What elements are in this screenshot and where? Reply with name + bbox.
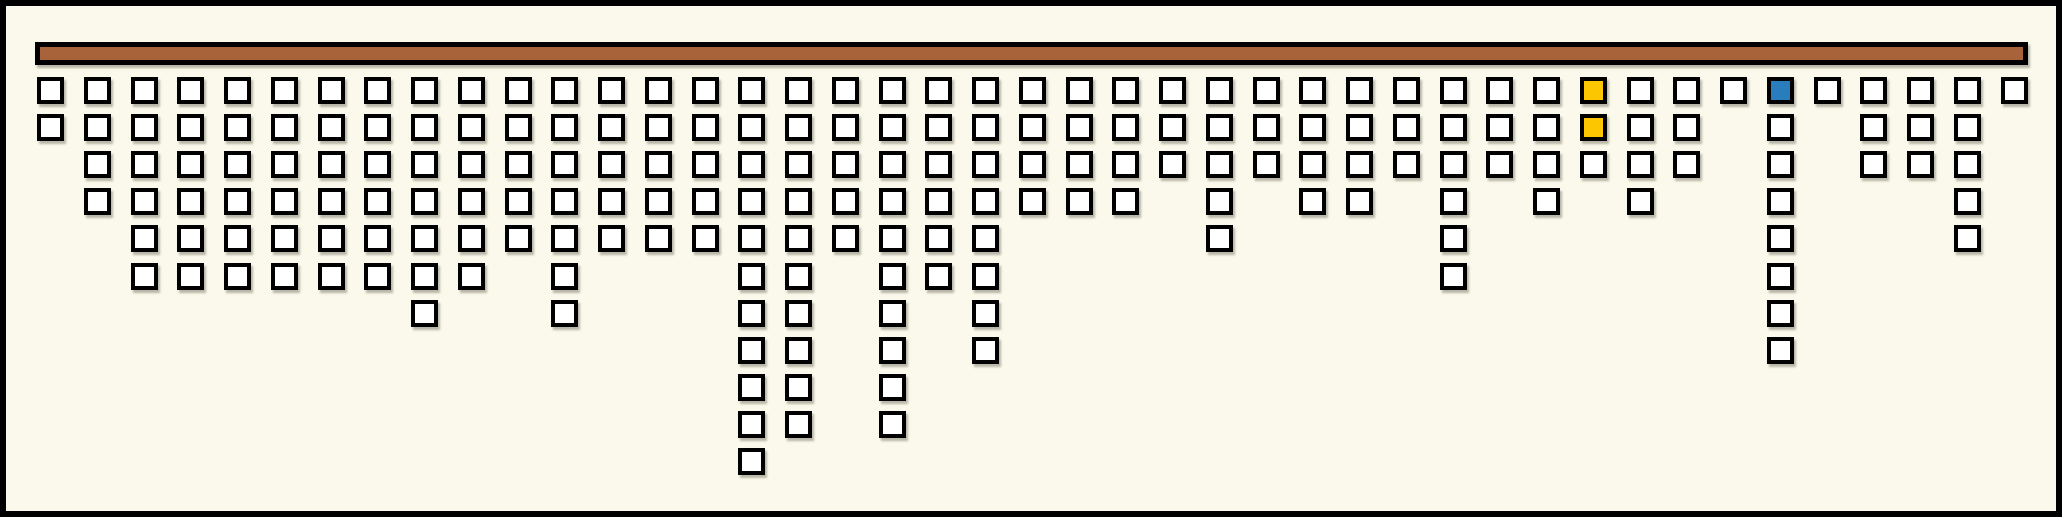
grid-cell — [505, 151, 532, 178]
grid-cell — [879, 188, 906, 215]
grid-cell — [1486, 114, 1513, 141]
grid-cell — [1440, 225, 1467, 252]
grid-cell — [738, 114, 765, 141]
grid-cell — [692, 77, 719, 104]
grid-cell — [972, 300, 999, 327]
grid-cell — [1206, 114, 1233, 141]
grid-cell — [785, 114, 812, 141]
grid-cell — [411, 300, 438, 327]
grid-cell — [598, 114, 625, 141]
grid-cell — [598, 225, 625, 252]
grid-cell — [1019, 151, 1046, 178]
grid-cell — [1767, 114, 1794, 141]
grid-cell — [738, 300, 765, 327]
grid-cell — [1767, 263, 1794, 290]
grid-cell — [1206, 151, 1233, 178]
grid-cell — [505, 77, 532, 104]
grid-cell — [1066, 77, 1093, 104]
grid-cell — [832, 225, 859, 252]
grid-cell — [1299, 114, 1326, 141]
grid-cell — [1907, 77, 1934, 104]
grid-cell — [1159, 114, 1186, 141]
grid-cell — [271, 225, 298, 252]
grid-cell — [1440, 114, 1467, 141]
grid-cell — [738, 151, 765, 178]
grid-cell — [551, 263, 578, 290]
grid-cell-yellow — [1580, 77, 1607, 104]
grid-cell — [364, 188, 391, 215]
grid-cell — [1206, 77, 1233, 104]
grid-cell — [177, 114, 204, 141]
grid-cell — [1112, 114, 1139, 141]
grid-cell — [551, 300, 578, 327]
grid-cell — [738, 225, 765, 252]
grid-cell — [131, 263, 158, 290]
grid-cell — [131, 114, 158, 141]
grid-cell — [224, 188, 251, 215]
grid-cell — [1580, 151, 1607, 178]
grid-cell — [879, 411, 906, 438]
grid-cell — [879, 114, 906, 141]
grid-cell — [1673, 151, 1700, 178]
grid-cell — [785, 374, 812, 401]
grid-cell — [879, 77, 906, 104]
grid-cell — [785, 188, 812, 215]
grid-cell — [131, 188, 158, 215]
grid-cell — [1206, 188, 1233, 215]
grid-cell — [1673, 77, 1700, 104]
grid-cell — [832, 151, 859, 178]
grid-cell — [1627, 188, 1654, 215]
grid-cell — [411, 77, 438, 104]
grid-cell — [1486, 151, 1513, 178]
grid-cell — [2001, 77, 2028, 104]
grid-cell — [177, 77, 204, 104]
grid-cell — [1954, 151, 1981, 178]
grid-cell — [1767, 225, 1794, 252]
grid-cell — [1253, 114, 1280, 141]
grid-cell — [925, 114, 952, 141]
grid-cell — [1533, 188, 1560, 215]
grid-cell — [1954, 77, 1981, 104]
grid-cell — [411, 188, 438, 215]
grid-cell — [1533, 151, 1560, 178]
grid-cell — [1627, 151, 1654, 178]
grid-cell — [131, 225, 158, 252]
grid-cell — [738, 374, 765, 401]
grid-cell — [1954, 114, 1981, 141]
grid-cell — [411, 114, 438, 141]
grid-cell — [879, 225, 906, 252]
grid-cell — [458, 225, 485, 252]
grid-cell — [1627, 114, 1654, 141]
grid-cell — [972, 337, 999, 364]
grid-cell — [131, 77, 158, 104]
grid-cell — [785, 151, 812, 178]
grid-cell — [411, 225, 438, 252]
grid-cell — [1486, 77, 1513, 104]
grid-cell — [505, 188, 532, 215]
grid-cell — [785, 300, 812, 327]
grid-cell — [84, 188, 111, 215]
grid-cell — [1066, 151, 1093, 178]
grid-cell — [318, 151, 345, 178]
grid-cell — [364, 77, 391, 104]
grid-cell — [364, 114, 391, 141]
grid-cell — [271, 188, 298, 215]
grid-cell — [879, 374, 906, 401]
grid-cell — [551, 188, 578, 215]
grid-cell — [364, 263, 391, 290]
grid-cell — [1299, 151, 1326, 178]
grid-cell — [318, 114, 345, 141]
grid-cell — [177, 151, 204, 178]
grid-cell — [1767, 300, 1794, 327]
grid-cell — [1066, 114, 1093, 141]
grid-cell — [551, 114, 578, 141]
grid-cell — [1440, 151, 1467, 178]
grid-cell — [131, 151, 158, 178]
grid-cell — [645, 114, 672, 141]
grid-cell — [1346, 114, 1373, 141]
grid-cell — [37, 114, 64, 141]
grid-cell — [1907, 114, 1934, 141]
grid-cell — [224, 151, 251, 178]
grid-cell — [738, 188, 765, 215]
grid-cell — [1814, 77, 1841, 104]
grid-cell — [1907, 151, 1934, 178]
grid-cell — [411, 263, 438, 290]
grid-cell — [318, 188, 345, 215]
grid-cell — [224, 77, 251, 104]
grid-cell — [1066, 188, 1093, 215]
grid-cell — [598, 151, 625, 178]
grid-cell — [879, 263, 906, 290]
grid-cell — [1767, 337, 1794, 364]
grid-cell — [1767, 188, 1794, 215]
grid-cell — [785, 337, 812, 364]
grid-cell — [738, 411, 765, 438]
grid-cell — [1253, 151, 1280, 178]
grid-cell — [318, 263, 345, 290]
grid-cell — [177, 188, 204, 215]
grid-cell — [598, 77, 625, 104]
grid-cell — [738, 77, 765, 104]
grid-cell — [177, 225, 204, 252]
grid-cell — [551, 225, 578, 252]
grid-cell — [1860, 151, 1887, 178]
grid-cell — [1720, 77, 1747, 104]
grid-cell — [1533, 114, 1560, 141]
grid-cell — [692, 114, 719, 141]
grid-cell — [318, 77, 345, 104]
grid-cell — [1954, 225, 1981, 252]
grid-cell — [925, 225, 952, 252]
grid-cell — [1159, 151, 1186, 178]
grid-cell — [458, 263, 485, 290]
grid-cell — [458, 114, 485, 141]
grid-cell — [1440, 77, 1467, 104]
grid-cell — [785, 77, 812, 104]
grid-cell — [785, 225, 812, 252]
grid-cell — [1299, 77, 1326, 104]
grid-cell — [1253, 77, 1280, 104]
grid-cell — [1673, 114, 1700, 141]
grid-cell — [1767, 151, 1794, 178]
grid-cell — [1440, 188, 1467, 215]
grid-cell — [84, 114, 111, 141]
grid-cell — [224, 263, 251, 290]
grid-cell — [1393, 77, 1420, 104]
grid-cell — [832, 77, 859, 104]
grid-cell — [1112, 151, 1139, 178]
icon-grid — [6, 6, 2056, 511]
grid-cell — [972, 225, 999, 252]
grid-cell — [224, 225, 251, 252]
grid-cell — [925, 151, 952, 178]
grid-cell — [1533, 77, 1560, 104]
grid-cell — [458, 77, 485, 104]
grid-cell — [645, 151, 672, 178]
grid-cell — [1440, 263, 1467, 290]
grid-cell — [972, 263, 999, 290]
grid-cell — [364, 225, 391, 252]
grid-cell — [505, 114, 532, 141]
grid-cell — [84, 77, 111, 104]
grid-cell — [1019, 77, 1046, 104]
grid-cell — [458, 188, 485, 215]
grid-cell — [1393, 151, 1420, 178]
grid-cell — [738, 263, 765, 290]
grid-cell — [645, 77, 672, 104]
grid-cell — [785, 263, 812, 290]
grid-cell — [879, 337, 906, 364]
grid-cell — [364, 151, 391, 178]
grid-cell — [1159, 77, 1186, 104]
grid-cell — [1019, 188, 1046, 215]
grid-cell — [598, 188, 625, 215]
grid-cell — [411, 151, 438, 178]
grid-cell — [879, 151, 906, 178]
grid-cell — [692, 225, 719, 252]
grid-cell — [458, 151, 485, 178]
grid-cell — [1860, 114, 1887, 141]
grid-cell — [224, 114, 251, 141]
grid-cell — [925, 263, 952, 290]
grid-cell — [692, 151, 719, 178]
grid-cell — [37, 77, 64, 104]
grid-cell — [832, 188, 859, 215]
grid-cell — [271, 77, 298, 104]
grid-cell — [832, 114, 859, 141]
grid-cell — [177, 263, 204, 290]
grid-cell — [271, 114, 298, 141]
grid-cell — [551, 77, 578, 104]
grid-cell — [318, 225, 345, 252]
grid-cell — [972, 77, 999, 104]
grid-cell — [972, 114, 999, 141]
grid-cell — [692, 188, 719, 215]
grid-cell — [1393, 114, 1420, 141]
grid-cell — [925, 188, 952, 215]
grid-cell — [645, 188, 672, 215]
grid-cell-yellow — [1580, 114, 1607, 141]
grid-cell — [1206, 225, 1233, 252]
grid-cell — [1860, 77, 1887, 104]
figure-frame — [0, 0, 2062, 517]
grid-cell — [1954, 188, 1981, 215]
grid-cell — [1299, 188, 1326, 215]
grid-cell — [738, 448, 765, 475]
grid-cell — [925, 77, 952, 104]
grid-cell — [1346, 151, 1373, 178]
grid-cell — [1112, 188, 1139, 215]
grid-cell — [738, 337, 765, 364]
grid-cell — [271, 151, 298, 178]
grid-cell — [1627, 77, 1654, 104]
grid-cell — [84, 151, 111, 178]
grid-cell — [1019, 114, 1046, 141]
grid-cell — [785, 411, 812, 438]
grid-cell — [972, 188, 999, 215]
grid-cell — [645, 225, 672, 252]
grid-cell — [505, 225, 532, 252]
grid-cell — [879, 300, 906, 327]
grid-cell — [1346, 77, 1373, 104]
grid-cell-blue — [1767, 77, 1794, 104]
grid-cell — [551, 151, 578, 178]
grid-cell — [1112, 77, 1139, 104]
grid-cell — [271, 263, 298, 290]
grid-cell — [972, 151, 999, 178]
grid-cell — [1346, 188, 1373, 215]
